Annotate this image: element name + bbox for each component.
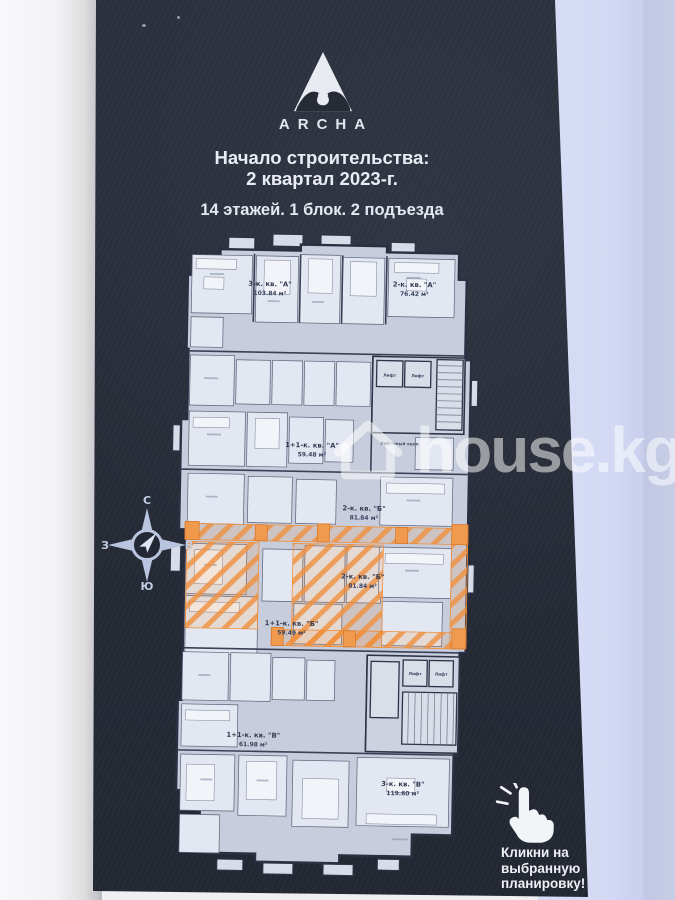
apartment-area: 103.84 м² — [253, 290, 286, 298]
dust-speck — [142, 24, 146, 27]
hand-click-icon — [492, 783, 564, 847]
cta-line1: Кликни на — [501, 845, 585, 861]
apartment-name: 1+1-к. кв. "В" — [226, 731, 280, 740]
cta-line2: выбранную — [501, 861, 585, 877]
compass-east: В — [185, 539, 193, 552]
archa-logo — [292, 50, 354, 114]
construction-start-line2: 2 квартал 2023-г. — [132, 168, 512, 190]
building-info: 14 этажей. 1 блок. 2 подъезда — [112, 201, 532, 220]
apartment-name: 3-к. кв. "В" — [381, 780, 424, 789]
floor-plan-drawing: Лифт Лифт Лифтовый холл Лифт Лифт — [158, 228, 484, 884]
cta-line3: планировку! — [501, 876, 585, 892]
construction-start-line1: Начало строительства: — [132, 147, 512, 169]
apartment-area: 59.49 м² — [277, 629, 306, 637]
apartment-area: 119.60 м² — [386, 790, 419, 798]
cta-caption: Кликни на выбранную планировку! — [501, 845, 585, 892]
page-margin-left — [0, 0, 102, 900]
apartment-name: 1+1-к. кв. "А" — [285, 441, 339, 450]
compass-rose: С В Ю З — [100, 494, 194, 590]
apartment-area: 76.42 м² — [400, 291, 429, 299]
apartment-area: 81.84 м² — [348, 583, 377, 591]
apartment-name: 2-к. кв. "Б" — [342, 504, 385, 513]
photo-of-floorplan-poster: ARCHA Начало строительства: 2 квартал 20… — [0, 0, 675, 900]
elevator-hall-label: Лифтовый холл — [380, 441, 419, 447]
brand-name: ARCHA — [212, 116, 432, 133]
apartment-name: 2-к. кв. "Б" — [341, 572, 384, 581]
compass-west: З — [101, 539, 109, 552]
apartment-area: 59.48 м² — [298, 451, 327, 459]
apartment-area: 61.98 м² — [239, 741, 268, 749]
archa-logo-icon — [292, 50, 354, 114]
compass-south: Ю — [141, 580, 154, 590]
elevator-label: Лифт — [383, 373, 397, 378]
elevator-label: Лифт — [411, 373, 425, 378]
apartment-name: 3-к. кв. "А" — [248, 280, 292, 289]
compass-north: С — [143, 494, 151, 507]
apartment-name: 2-к. кв. "А" — [393, 280, 437, 289]
apartment-name: 1+1-к. кв. "Б" — [265, 619, 319, 628]
stair-elevator-core-2: Лифт Лифт — [365, 655, 459, 753]
dust-speck — [177, 16, 180, 19]
floor-plan[interactable]: Лифт Лифт Лифтовый холл Лифт Лифт — [158, 228, 484, 884]
elevator-label: Лифт — [408, 671, 422, 676]
apartment-area: 81.84 м² — [349, 514, 378, 522]
elevator-label: Лифт — [435, 672, 449, 677]
